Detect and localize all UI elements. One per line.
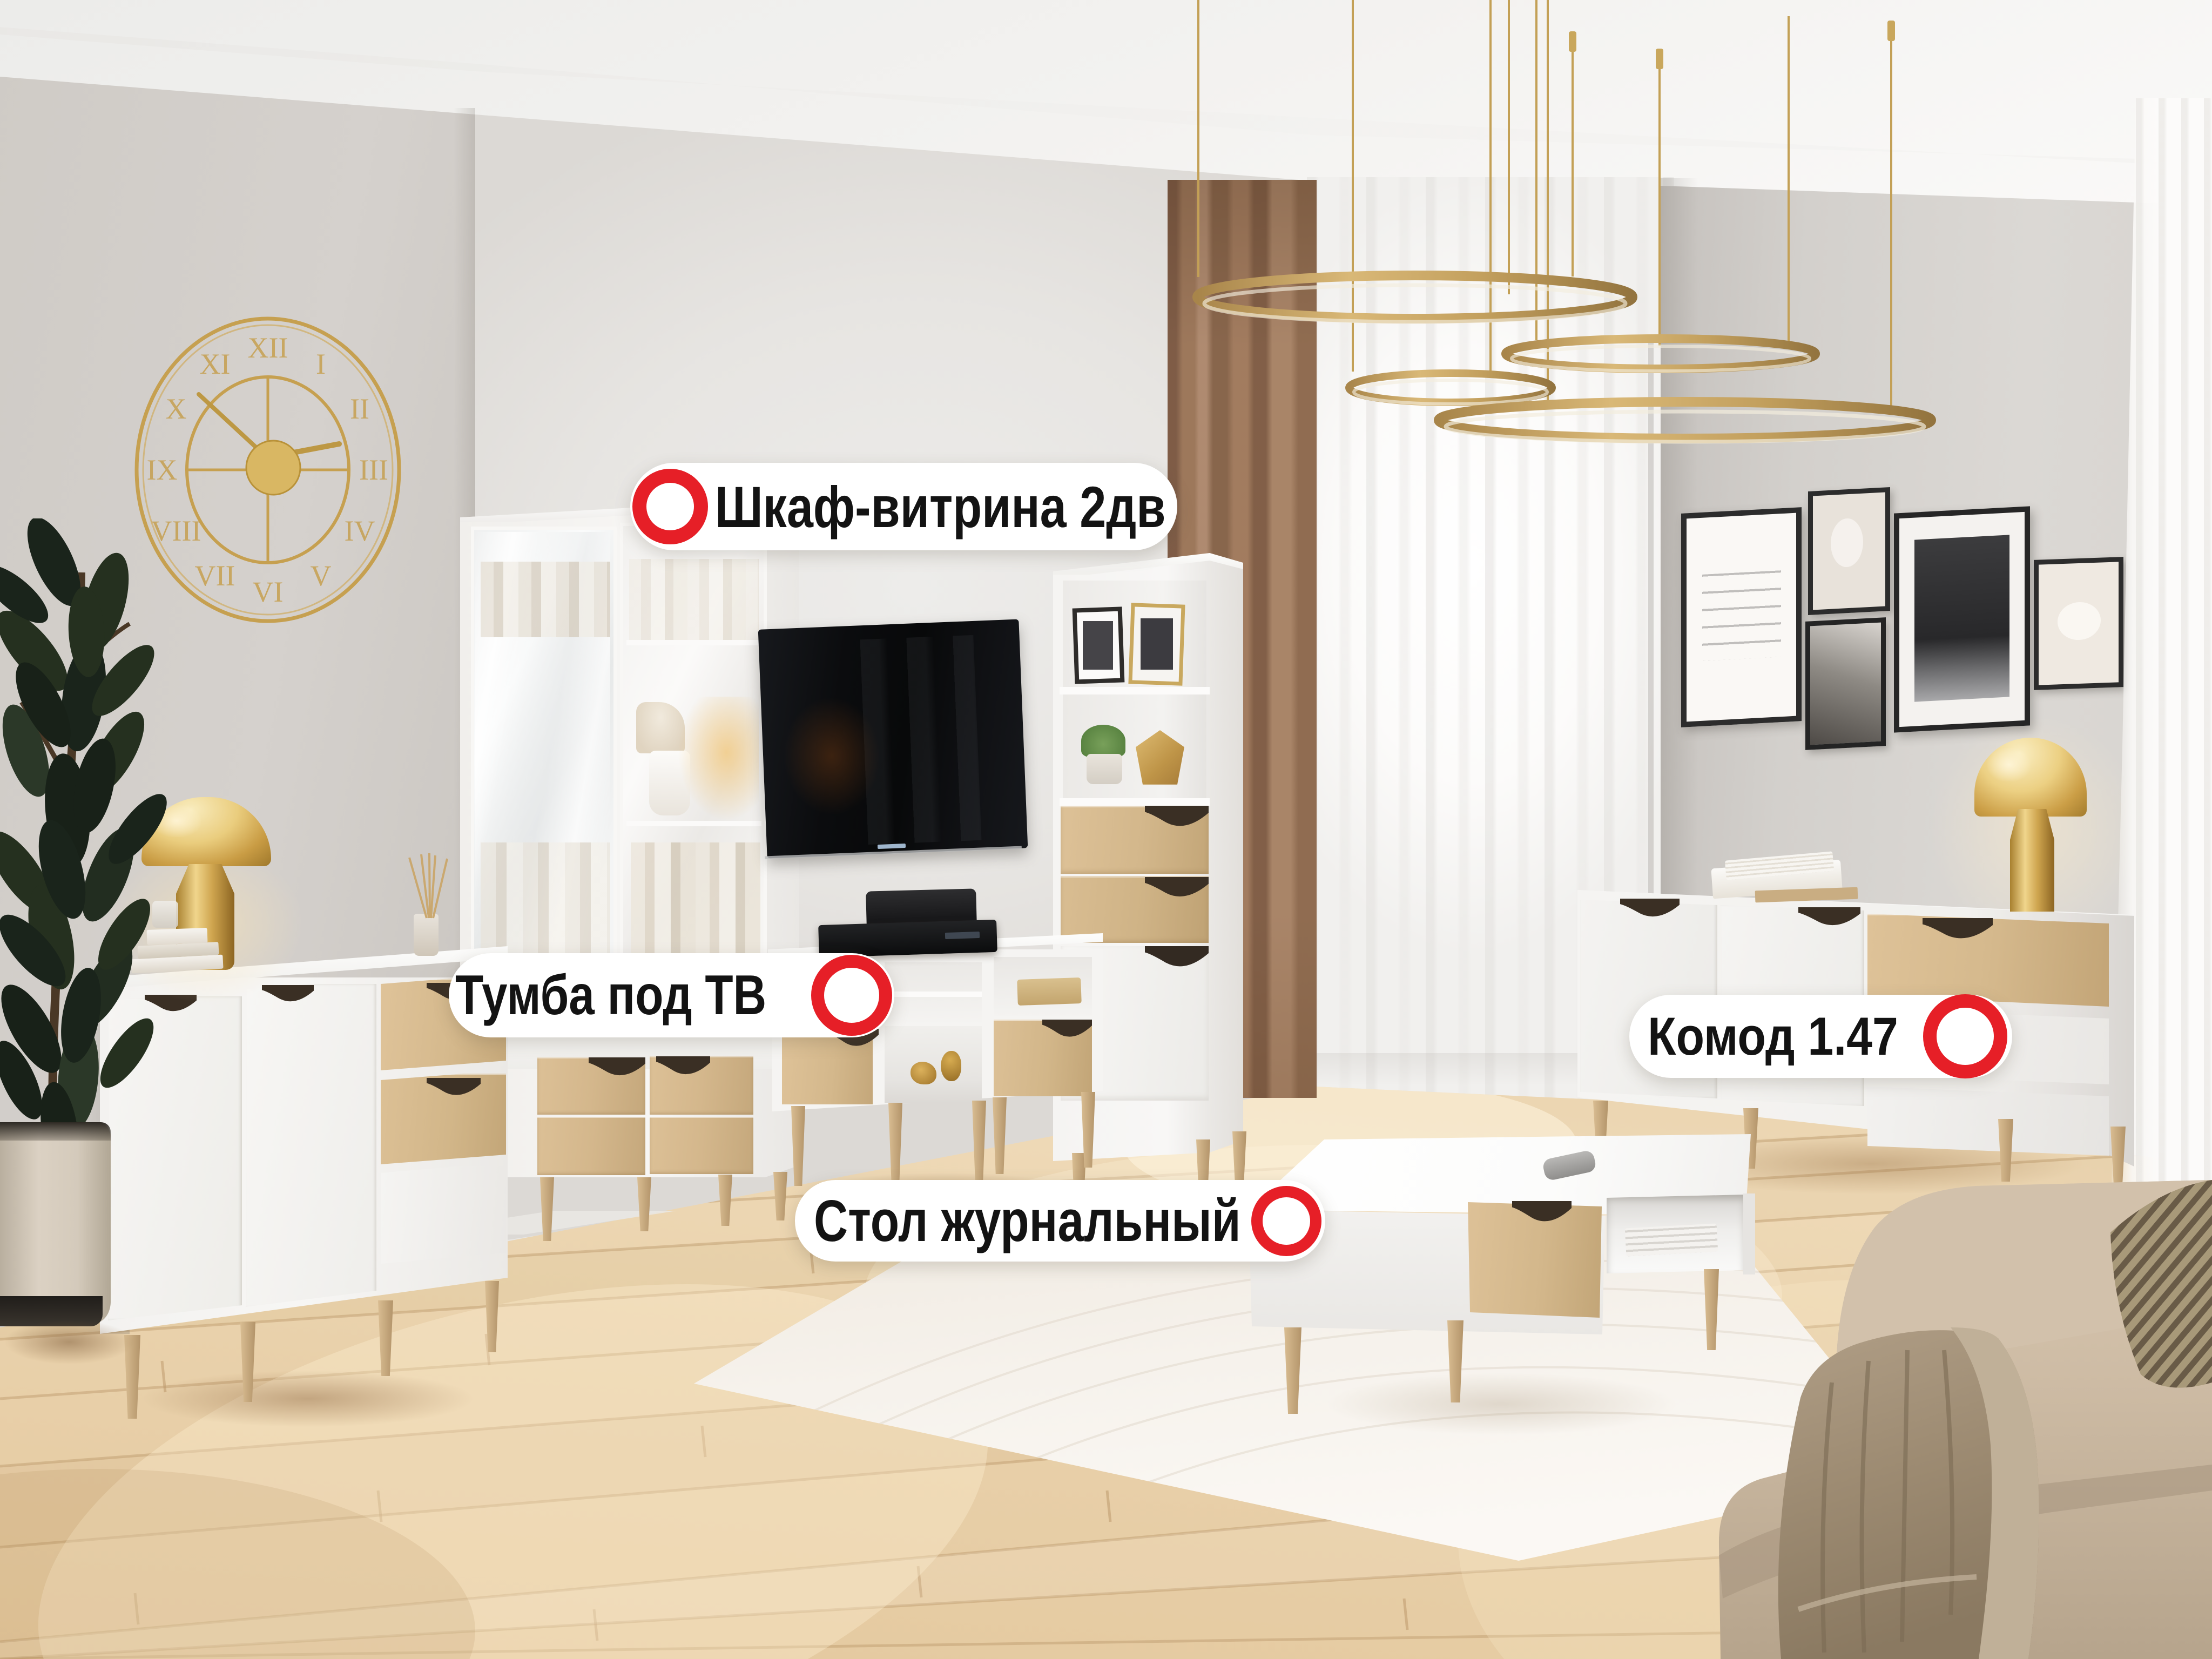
- svg-text:IV: IV: [345, 515, 375, 547]
- svg-text:II: II: [350, 393, 369, 425]
- svg-text:XI: XI: [200, 348, 231, 380]
- svg-text:IX: IX: [147, 454, 178, 486]
- svg-text:I: I: [316, 348, 326, 380]
- svg-text:VI: VI: [253, 576, 284, 608]
- svg-text:X: X: [166, 393, 187, 425]
- svg-text:V: V: [311, 559, 332, 592]
- svg-text:XII: XII: [248, 332, 288, 364]
- svg-text:III: III: [359, 454, 388, 486]
